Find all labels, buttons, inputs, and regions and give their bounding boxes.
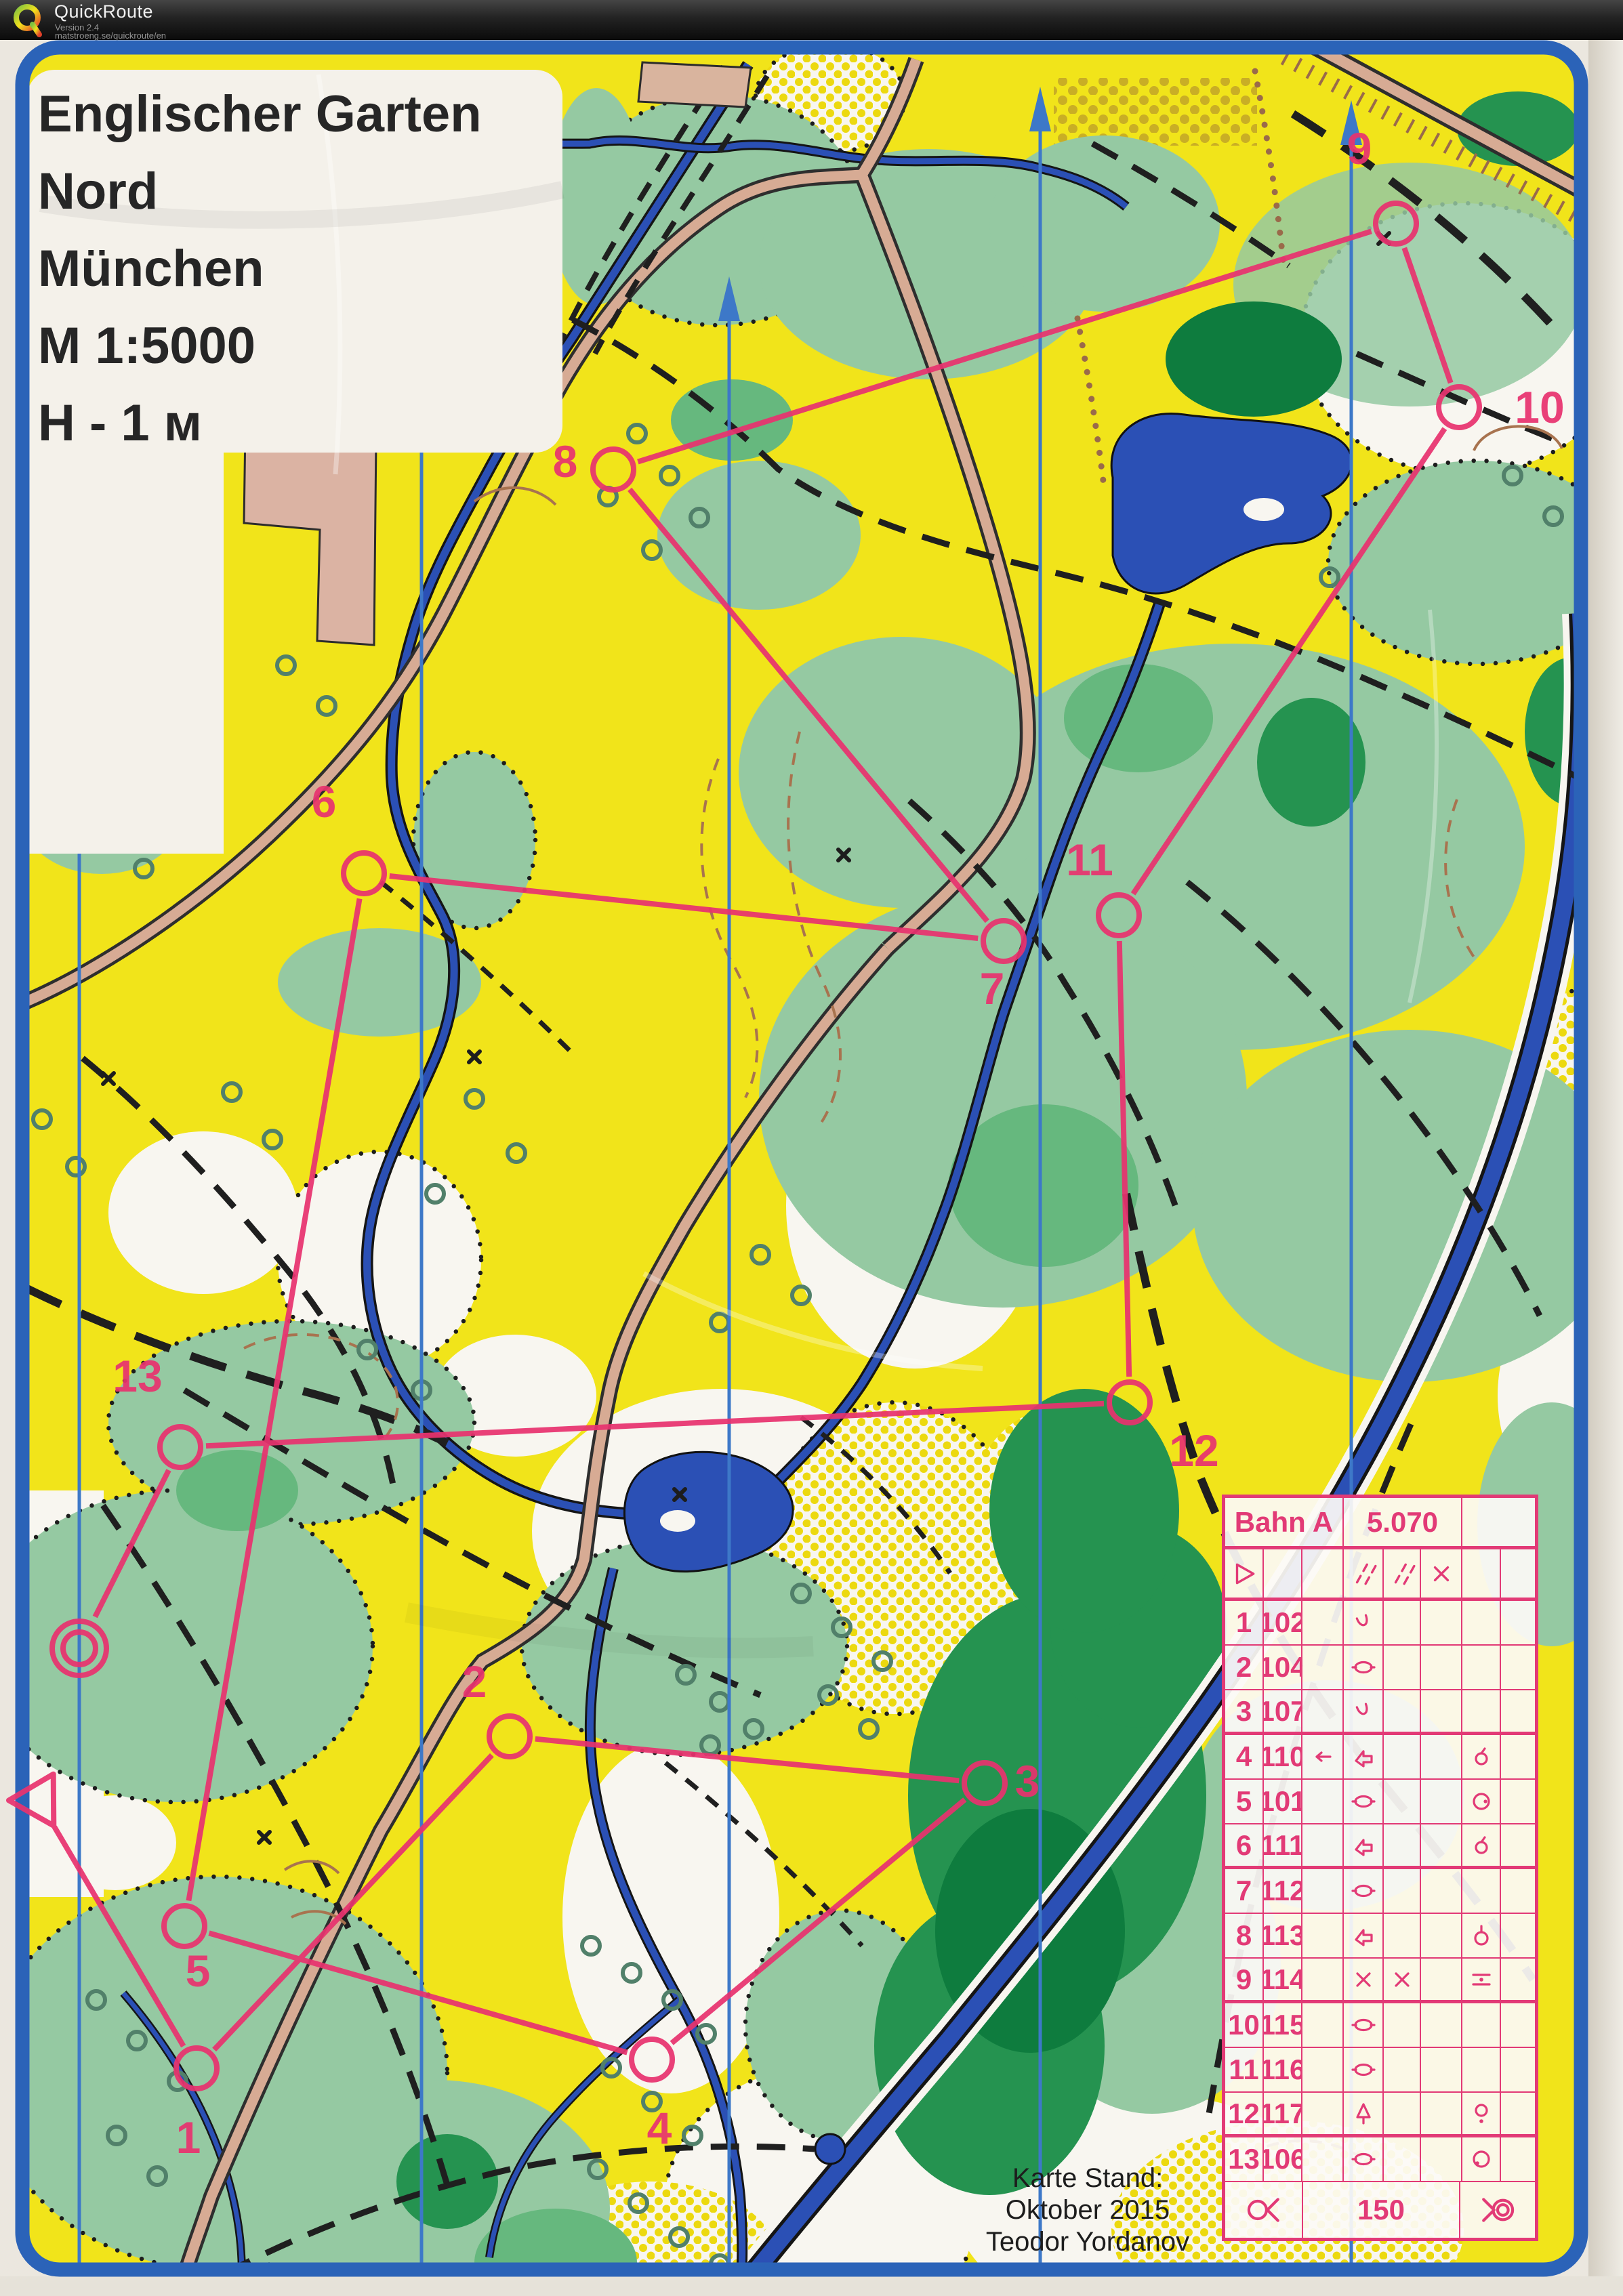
credit-line: Teodor Yordanov — [949, 2226, 1227, 2258]
desc-cell — [1462, 1735, 1501, 1778]
control-number-9: 9 — [1347, 123, 1372, 173]
desc-cell: 8 — [1225, 1914, 1264, 1957]
desc-symbol-arrow-left — [1309, 1743, 1336, 1770]
desc-cell: 7 — [1225, 1869, 1264, 1913]
desc-cell — [1462, 1959, 1501, 2000]
desc-cell — [1501, 2048, 1535, 2091]
desc-row: 13106 — [1225, 2137, 1535, 2182]
desc-symbol-taped-route-start — [1246, 2192, 1281, 2228]
desc-row: 150 — [1225, 2182, 1535, 2238]
desc-cell — [1344, 1601, 1384, 1644]
desc-symbol-tree — [1350, 2100, 1377, 2127]
desc-cell — [1384, 1601, 1421, 1644]
desc-cell — [1501, 1959, 1535, 2000]
desc-cell: 2 — [1225, 1646, 1264, 1689]
desc-cell — [1344, 1959, 1384, 2000]
desc-symbol-circle-dot-inside — [1468, 2146, 1495, 2173]
desc-symbol-oval — [1350, 1654, 1377, 1681]
desc-cell — [1344, 2137, 1384, 2181]
map-title-line: Nord — [38, 153, 482, 230]
desc-cell: 11 — [1225, 2048, 1264, 2091]
desc-symbol-slashes — [1388, 1560, 1416, 1588]
desc-cell — [1421, 1914, 1462, 1957]
desc-cell — [1384, 1735, 1421, 1778]
desc-cell: 104 — [1264, 1646, 1302, 1689]
control-number-7: 7 — [980, 963, 1005, 1014]
desc-symbol-oval — [1350, 1788, 1377, 1815]
control-number-1: 1 — [176, 2112, 201, 2163]
desc-cell — [1462, 1914, 1501, 1957]
map-contour-interval: H - 1 м — [38, 385, 482, 462]
control-number-2: 2 — [462, 1656, 487, 1707]
desc-symbol-oval — [1350, 2011, 1377, 2039]
desc-cell: 5.070 — [1344, 1498, 1462, 1546]
desc-cell — [1344, 1780, 1384, 1823]
desc-cell — [1421, 1824, 1462, 1866]
desc-cell — [1462, 1646, 1501, 1689]
desc-cell — [1501, 1780, 1535, 1823]
credit-line: Karte Stand: — [949, 2163, 1227, 2194]
control-descriptions: Bahn A5.07011022104310741105101611171128… — [1222, 1495, 1538, 2241]
desc-row: 4110 — [1225, 1735, 1535, 1780]
desc-cell: 9 — [1225, 1959, 1264, 2000]
desc-cell: 115 — [1264, 2003, 1302, 2047]
desc-row: 9114 — [1225, 1959, 1535, 2003]
desc-cell — [1421, 1959, 1462, 2000]
desc-cell — [1384, 2003, 1421, 2047]
desc-symbol-slashes — [1349, 1560, 1378, 1588]
desc-cell: 3 — [1225, 1690, 1264, 1732]
desc-cell: 111 — [1264, 1824, 1302, 1866]
desc-row: 7112 — [1225, 1869, 1535, 1914]
desc-cell — [1302, 1690, 1344, 1732]
desc-cell — [1421, 1735, 1462, 1778]
control-number-8: 8 — [553, 436, 578, 486]
desc-cell — [1421, 2093, 1462, 2134]
control-number-4: 4 — [647, 2103, 672, 2153]
desc-row: 6111 — [1225, 1824, 1535, 1869]
desc-cell — [1302, 2137, 1344, 2181]
desc-cell — [1384, 1549, 1421, 1598]
desc-cell — [1421, 1601, 1462, 1644]
desc-symbol-bend-arrow — [1350, 1743, 1377, 1770]
desc-cell — [1302, 2093, 1344, 2134]
desc-symbol-between-lines — [1468, 1966, 1495, 1993]
desc-cell — [1462, 1549, 1501, 1598]
desc-symbol-bend-arrow — [1350, 1832, 1377, 1859]
desc-row: Bahn A5.070 — [1225, 1498, 1535, 1549]
desc-cell: 106 — [1264, 2137, 1302, 2181]
desc-cell — [1302, 1959, 1344, 2000]
desc-cell — [1462, 2048, 1501, 2091]
app-title: QuickRoute — [54, 1, 153, 22]
desc-cell — [1384, 1824, 1421, 1866]
control-number-6: 6 — [312, 776, 337, 827]
desc-cell — [1501, 1549, 1535, 1598]
desc-cell — [1501, 2003, 1535, 2047]
desc-row: 2104 — [1225, 1646, 1535, 1690]
control-number-13: 13 — [112, 1351, 162, 1401]
desc-symbol-taped-route-finish — [1480, 2192, 1515, 2228]
desc-cell — [1421, 1780, 1462, 1823]
desc-cell — [1344, 1549, 1384, 1598]
desc-cell — [1462, 2003, 1501, 2047]
desc-cell: 4 — [1225, 1735, 1264, 1778]
desc-cell — [1302, 1824, 1344, 1866]
desc-row: 3107 — [1225, 1690, 1535, 1735]
desc-cell: 112 — [1264, 1869, 1302, 1913]
desc-symbol-u — [1350, 1609, 1377, 1636]
desc-cell — [1501, 1735, 1535, 1778]
map-credits: Karte Stand: Oktober 2015 Teodor Yordano… — [949, 2163, 1227, 2258]
desc-cell — [1384, 1780, 1421, 1823]
desc-cell — [1501, 1869, 1535, 1913]
desc-row — [1225, 1549, 1535, 1601]
desc-cell: 13 — [1225, 2137, 1264, 2181]
desc-cell — [1384, 1914, 1421, 1957]
control-number-11: 11 — [1066, 835, 1113, 885]
desc-symbol-circle-tick — [1468, 1832, 1495, 1859]
map-title-line: München — [38, 230, 482, 308]
desc-cell — [1462, 1690, 1501, 1732]
desc-cell — [1421, 1869, 1462, 1913]
desc-cell — [1225, 1549, 1264, 1598]
desc-cell: 5 — [1225, 1780, 1264, 1823]
desc-cell — [1344, 1646, 1384, 1689]
desc-symbol-cross — [1389, 1966, 1416, 1993]
desc-cell — [1384, 1959, 1421, 2000]
desc-row: 8113 — [1225, 1914, 1535, 1959]
desc-cell — [1462, 1780, 1501, 1823]
desc-row: 12117 — [1225, 2093, 1535, 2137]
desc-cell — [1501, 1601, 1535, 1644]
desc-cell — [1344, 2048, 1384, 2091]
desc-symbol-start-triangle — [1230, 1560, 1258, 1588]
desc-cell: 110 — [1264, 1735, 1302, 1778]
desc-cell — [1421, 2048, 1462, 2091]
desc-cell — [1344, 1914, 1384, 1957]
desc-cell — [1344, 1690, 1384, 1732]
desc-row: 10115 — [1225, 2003, 1535, 2048]
desc-cell — [1462, 1601, 1501, 1644]
desc-cell — [1501, 1690, 1535, 1732]
desc-symbol-oval — [1350, 2056, 1377, 2083]
desc-cell — [1501, 1646, 1535, 1689]
map-scale: M 1:5000 — [38, 308, 482, 385]
desc-cell: 150 — [1303, 2182, 1460, 2238]
desc-symbol-cross — [1427, 1560, 1456, 1588]
desc-cell — [1302, 1646, 1344, 1689]
desc-cell — [1384, 1646, 1421, 1689]
desc-cell: 107 — [1264, 1690, 1302, 1732]
desc-cell: 116 — [1264, 2048, 1302, 2091]
control-number-12: 12 — [1169, 1425, 1218, 1476]
desc-cell — [1384, 2048, 1421, 2091]
desc-symbol-circle-dot-right — [1468, 1788, 1495, 1815]
desc-cell — [1384, 2137, 1421, 2181]
desc-symbol-oval — [1350, 1877, 1377, 1904]
desc-cell — [1302, 1549, 1344, 1598]
desc-cell — [1344, 2003, 1384, 2047]
map-title: Englischer Garten Nord München M 1:5000 … — [38, 76, 482, 462]
desc-cell — [1264, 1549, 1302, 1598]
desc-cell — [1302, 1869, 1344, 1913]
desc-row: 5101 — [1225, 1780, 1535, 1824]
desc-cell — [1384, 2093, 1421, 2134]
desc-cell: 1 — [1225, 1601, 1264, 1644]
desc-cell — [1462, 1824, 1501, 1866]
control-number-10: 10 — [1515, 382, 1564, 432]
desc-cell: 101 — [1264, 1780, 1302, 1823]
desc-cell — [1302, 1735, 1344, 1778]
desc-cell: 10 — [1225, 2003, 1264, 2047]
desc-cell — [1302, 1601, 1344, 1644]
desc-cell: 114 — [1264, 1959, 1302, 2000]
desc-cell — [1462, 1498, 1535, 1546]
desc-cell — [1344, 1869, 1384, 1913]
desc-cell — [1384, 1690, 1421, 1732]
app-header: QuickRoute Version 2.4 matstroeng.se/qui… — [0, 0, 1623, 40]
desc-cell — [1344, 1824, 1384, 1866]
desc-symbol-circle-dot-below — [1468, 2100, 1495, 2127]
desc-symbol-cross — [1350, 1966, 1377, 1993]
desc-row: 11116 — [1225, 2048, 1535, 2093]
desc-cell — [1501, 1914, 1535, 1957]
desc-cell — [1421, 1549, 1462, 1598]
desc-cell — [1384, 1869, 1421, 1913]
desc-cell — [1462, 1869, 1501, 1913]
desc-cell — [1460, 2182, 1535, 2238]
desc-cell — [1462, 2093, 1501, 2134]
desc-symbol-circle-stem — [1468, 1922, 1495, 1949]
desc-cell — [1225, 2182, 1303, 2238]
desc-cell — [1302, 2048, 1344, 2091]
desc-cell — [1302, 1914, 1344, 1957]
desc-cell — [1501, 2093, 1535, 2134]
desc-cell — [1421, 1690, 1462, 1732]
desc-cell — [1344, 2093, 1384, 2134]
desc-cell — [1344, 1735, 1384, 1778]
desc-cell: Bahn A — [1225, 1498, 1344, 1546]
desc-cell — [1421, 2003, 1462, 2047]
desc-cell — [1421, 2137, 1462, 2181]
desc-row: 1102 — [1225, 1601, 1535, 1646]
desc-cell — [1302, 2003, 1344, 2047]
map-title-line: Englischer Garten — [38, 76, 482, 153]
quickroute-window: 12345678910111213 QuickRoute Version 2.4… — [0, 0, 1623, 2296]
desc-cell: 117 — [1264, 2093, 1302, 2134]
desc-cell — [1302, 1780, 1344, 1823]
quickroute-logo-icon — [11, 2, 46, 39]
desc-cell — [1501, 2137, 1535, 2181]
desc-symbol-u — [1350, 1698, 1377, 1725]
desc-cell: 102 — [1264, 1601, 1302, 1644]
desc-symbol-oval — [1350, 2146, 1377, 2173]
desc-cell: 12 — [1225, 2093, 1264, 2134]
desc-symbol-circle-tick — [1468, 1743, 1495, 1770]
desc-cell: 6 — [1225, 1824, 1264, 1866]
credit-line: Oktober 2015 — [949, 2194, 1227, 2226]
desc-cell — [1501, 1824, 1535, 1866]
control-number-3: 3 — [1015, 1756, 1040, 1806]
app-url: matstroeng.se/quickroute/en — [55, 30, 166, 41]
control-number-5: 5 — [186, 1946, 211, 1996]
desc-symbol-bend-arrow — [1350, 1922, 1377, 1949]
desc-cell — [1421, 1646, 1462, 1689]
desc-cell: 113 — [1264, 1914, 1302, 1957]
desc-cell — [1462, 2137, 1501, 2181]
